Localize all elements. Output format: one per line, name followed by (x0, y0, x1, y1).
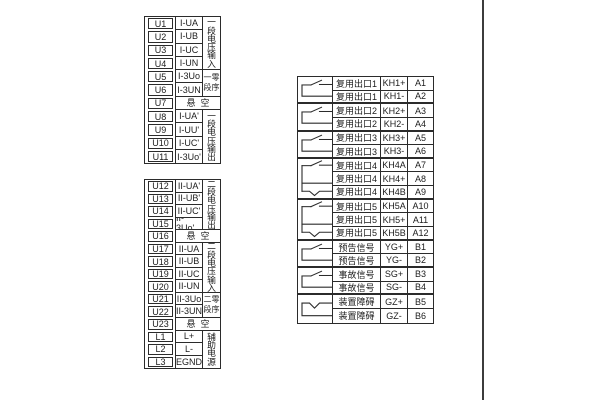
terminal-box: U21 (148, 294, 173, 305)
terminal-box: U12 (148, 181, 173, 192)
output-name-cell: 装置障碍 (332, 309, 380, 323)
terminal-number-cell: B3 (407, 268, 433, 282)
output-name-cell: 复用出口5 (332, 227, 380, 241)
output-name-cell: 事故信号 (332, 282, 380, 296)
voltage-terminal-table-2: U12 U13 U14 U15 U16 U17 U18 U19 U20 U21 … (144, 179, 221, 369)
signal-cell: I-UA' (175, 110, 202, 123)
terminal-number-cell: B2 (407, 254, 433, 268)
terminal-code-cell: GZ+ (380, 295, 407, 309)
signal-cell: I-3Uo (175, 70, 202, 83)
terminal-number-cell: A2 (407, 91, 433, 105)
relay-changeover-contact-icon (298, 200, 332, 239)
signal-cell: I-UN (175, 57, 202, 70)
terminal-code-cell: KH5+ (380, 213, 407, 227)
signal-cell: II-UA' (175, 180, 202, 193)
group-label: 二段电压输出 (202, 180, 220, 230)
output-name-cell: 复用出口1 (332, 77, 380, 91)
terminal-code-cell: YG- (380, 254, 407, 268)
relay-symbol-cell (298, 295, 332, 322)
output-name-cell: 预告信号 (332, 254, 380, 268)
terminal-number-cell: B1 (407, 241, 433, 255)
relay-symbol-cell (298, 268, 332, 295)
terminal-code-cell: SG+ (380, 268, 407, 282)
terminal-box: U13 (148, 194, 173, 205)
terminal-code-cell: KH5B (380, 227, 407, 241)
terminal-box: U11 (148, 151, 173, 162)
terminal-number-cell: A4 (407, 118, 433, 132)
signal-cell: L+ (175, 331, 202, 344)
terminal-code-cell: KH1+ (380, 77, 407, 91)
terminal-box: U16 (148, 231, 173, 242)
signal-cell: I-UC (175, 44, 202, 57)
terminal-box: U15 (148, 219, 173, 230)
signal-cell: II-UA (175, 243, 202, 256)
terminal-box: U10 (148, 138, 173, 149)
terminal-box: U1 (148, 18, 173, 29)
relay-symbol-cell (298, 132, 332, 159)
terminal-box: L1 (148, 332, 173, 343)
relay-no-contact-icon (298, 268, 332, 293)
terminal-code-cell: SG- (380, 282, 407, 296)
signal-cell: I-UU' (175, 123, 202, 136)
output-name-cell: 复用出口3 (332, 132, 380, 146)
signal-cell: I-UC' (175, 137, 202, 150)
relay-no-contact-icon (298, 77, 332, 102)
signal-cell: I-3Uo' (175, 150, 202, 163)
terminal-box: U5 (148, 71, 173, 82)
relay-no-contact-icon (298, 104, 332, 129)
group-label: 一段电压输出 (202, 110, 220, 163)
terminal-code-cell: KH2+ (380, 104, 407, 118)
terminal-code-cell: KH1- (380, 91, 407, 105)
output-name-cell: 事故信号 (332, 268, 380, 282)
terminal-number-cell: A12 (407, 227, 433, 241)
signal-cell: II-UB' (175, 193, 202, 206)
output-name-cell: 复用出口3 (332, 145, 380, 159)
terminal-box: U6 (148, 84, 173, 95)
output-name-cell: 复用出口5 (332, 200, 380, 214)
output-name-cell: 预告信号 (332, 241, 380, 255)
output-name-cell: 复用出口4 (332, 186, 380, 200)
terminal-code-cell: KH4A (380, 159, 407, 173)
terminal-box: U18 (148, 256, 173, 267)
signal-cell: II-UN (175, 280, 202, 293)
terminal-box: U7 (148, 98, 173, 109)
terminal-box: U9 (148, 124, 173, 135)
terminal-code-cell: KH4+ (380, 172, 407, 186)
signal-cell: I-UA (175, 17, 202, 30)
output-name-cell: 复用出口4 (332, 159, 380, 173)
signal-cell: EGND (175, 356, 202, 369)
signal-cell: II-3Uo' (175, 218, 202, 231)
terminal-number-cell: A5 (407, 132, 433, 146)
terminal-code-cell: KH5A (380, 200, 407, 214)
group-label: 二段电压输入 (202, 243, 220, 293)
terminal-code-cell: KH4B (380, 186, 407, 200)
terminal-number-cell: A8 (407, 172, 433, 186)
signal-cell-unconnected: 悬空 (175, 97, 220, 110)
terminal-code-cell: YG+ (380, 241, 407, 255)
terminal-number-cell: A1 (407, 77, 433, 91)
terminal-box: U14 (148, 206, 173, 217)
terminal-number-cell: B6 (407, 309, 433, 323)
signal-cell: II-UC (175, 268, 202, 281)
terminal-box: L2 (148, 344, 173, 355)
terminal-box: U23 (148, 319, 173, 330)
terminal-number-cell: A10 (407, 200, 433, 214)
relay-nc-contact-icon (298, 295, 332, 322)
relay-symbol-cell (298, 159, 332, 200)
signal-cell: II-UC' (175, 205, 202, 218)
page-border-line (482, 0, 484, 400)
terminal-number-cell: B5 (407, 295, 433, 309)
group-label: 辅助电源 (202, 331, 220, 369)
output-name-cell: 复用出口5 (332, 213, 380, 227)
output-name-cell: 复用出口2 (332, 118, 380, 132)
relay-no-contact-icon (298, 241, 332, 266)
terminal-number-cell: A9 (407, 186, 433, 200)
output-name-cell: 复用出口1 (332, 91, 380, 105)
signal-cell: II-3Uo (175, 293, 202, 306)
terminal-code-cell: KH2- (380, 118, 407, 132)
output-name-cell: 装置障碍 (332, 295, 380, 309)
group-label: 一段电压输入 (202, 17, 220, 70)
terminal-number-cell: A11 (407, 213, 433, 227)
relay-symbol-cell (298, 200, 332, 241)
terminal-number-cell: A3 (407, 104, 433, 118)
terminal-box: U17 (148, 244, 173, 255)
wiring-diagram-page: U1 U2 U3 U4 U5 U6 U7 U8 U9 U10 U11 I-UA … (0, 0, 600, 400)
terminal-code-cell: KH3- (380, 145, 407, 159)
terminal-number-cell: A6 (407, 145, 433, 159)
relay-symbol-cell (298, 241, 332, 268)
terminal-code-cell: KH3+ (380, 132, 407, 146)
terminal-code-cell: GZ- (380, 309, 407, 323)
relay-symbol-cell (298, 104, 332, 131)
output-name-cell: 复用出口2 (332, 104, 380, 118)
signal-cell: I-UB (175, 30, 202, 43)
terminal-box: U4 (148, 58, 173, 69)
terminal-box: U8 (148, 111, 173, 122)
terminal-box: U20 (148, 281, 173, 292)
group-label: 二零段序 (202, 293, 220, 318)
signal-cell: II-UB (175, 255, 202, 268)
terminal-box: U2 (148, 31, 173, 42)
signal-cell: L- (175, 343, 202, 356)
terminal-number-cell: B4 (407, 282, 433, 296)
terminal-box: U19 (148, 269, 173, 280)
output-name-cell: 复用出口4 (332, 172, 380, 186)
relay-symbol-cell (298, 77, 332, 104)
signal-cell: II-3UN (175, 305, 202, 318)
signal-cell-unconnected: 悬空 (175, 318, 220, 331)
output-terminal-table: 复用出口1 KH1+ A1 复用出口1 KH1- A2 复用出口2 KH2+ A… (297, 76, 434, 324)
relay-no-contact-icon (298, 132, 332, 157)
voltage-terminal-table-1: U1 U2 U3 U4 U5 U6 U7 U8 U9 U10 U11 I-UA … (144, 16, 221, 164)
terminal-number-cell: A7 (407, 159, 433, 173)
terminal-box: U22 (148, 306, 173, 317)
signal-cell: I-3UN (175, 83, 202, 96)
terminal-box: U3 (148, 45, 173, 56)
terminal-box: L3 (148, 357, 173, 368)
group-label: 一零段序 (202, 70, 220, 97)
signal-cell-unconnected: 悬空 (175, 230, 220, 243)
relay-changeover-contact-icon (298, 159, 332, 198)
